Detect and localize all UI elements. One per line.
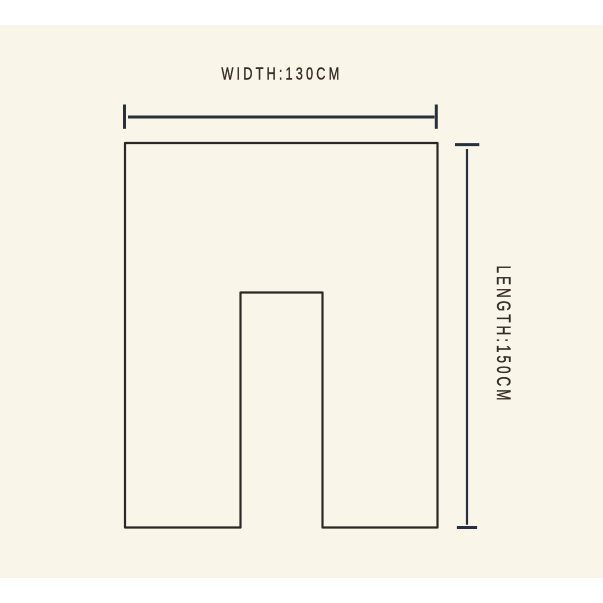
svg-text:LENGTH:150CM: LENGTH:150CM [492, 266, 513, 401]
svg-text:WIDTH:130CM: WIDTH:130CM [221, 64, 339, 84]
